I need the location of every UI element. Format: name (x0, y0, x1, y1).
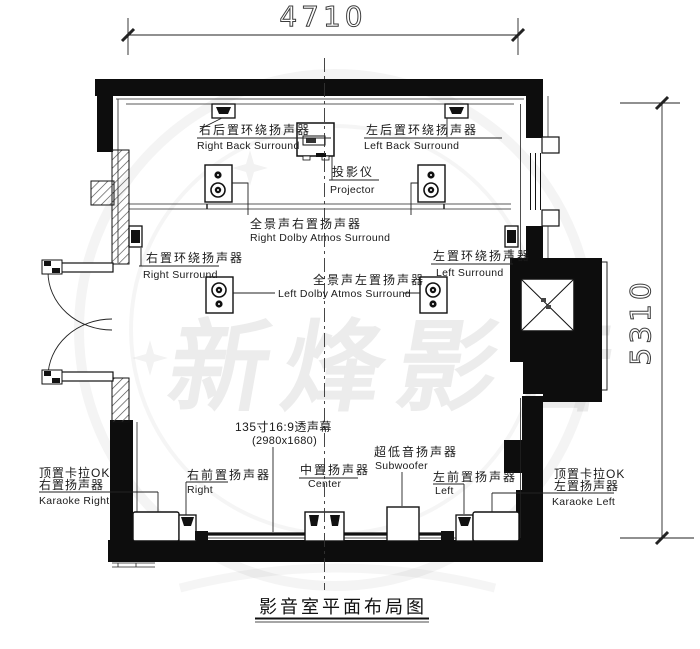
shaft-mark (541, 298, 546, 302)
svg-text:135寸16:9透声幕: 135寸16:9透声幕 (235, 420, 332, 434)
svg-text:Karaoke Right: Karaoke Right (39, 495, 109, 507)
svg-text:(2980x1680): (2980x1680) (252, 435, 317, 447)
dimension-right: 5310 (620, 97, 694, 544)
svg-text:左置扬声器: 左置扬声器 (554, 478, 619, 493)
screen-end-cap (441, 531, 454, 540)
svg-text:Right Surround: Right Surround (143, 269, 218, 281)
front-left-speaker (456, 515, 473, 541)
right-back-surround-speaker (212, 104, 235, 118)
svg-text:超低音扬声器: 超低音扬声器 (374, 444, 458, 459)
wall-right-upper (526, 96, 543, 138)
bay-notch (510, 362, 523, 394)
svg-text:Left: Left (435, 485, 454, 497)
dimension-top-value: 4710 (279, 0, 366, 33)
label-karaoke-right: 顶置卡拉OK 右置扬声器 Karaoke Right (39, 465, 110, 507)
label-right-back-surround: 右后置环绕扬声器 Right Back Surround (197, 122, 311, 152)
door-hinge-mark (44, 371, 51, 376)
label-front-right: 右前置扬声器 Right (187, 467, 271, 496)
svg-text:Karaoke Left: Karaoke Left (552, 496, 615, 508)
svg-text:Right Back Surround: Right Back Surround (197, 140, 300, 152)
label-subwoofer: 超低音扬声器 Subwoofer (374, 444, 458, 472)
svg-text:Left Back Surround: Left Back Surround (364, 140, 459, 152)
wall-left-lower (110, 420, 133, 542)
karaoke-right-cabinet (133, 512, 179, 541)
wall-pier (91, 181, 114, 205)
label-right-atmos: 全景声右置扬声器 Right Dolby Atmos Surround (250, 216, 390, 244)
left-back-surround-speaker (445, 104, 468, 118)
svg-text:全景声右置扬声器: 全景声右置扬声器 (250, 216, 362, 231)
svg-text:Left Surround: Left Surround (436, 267, 504, 279)
svg-text:Center: Center (308, 478, 342, 490)
floor-plan-page: 新烽影音 (0, 0, 700, 649)
door-hinge-mark (52, 378, 60, 383)
left-atmos-front-speaker (418, 165, 445, 202)
wall-hatched-lower (112, 378, 129, 422)
watermark-star-icon (232, 150, 268, 186)
wall-right-bulge (504, 440, 522, 473)
dimension-top: 4710 (122, 0, 524, 55)
svg-text:投影仪: 投影仪 (332, 164, 374, 179)
subwoofer-box (387, 507, 419, 541)
wall-top (95, 79, 543, 96)
svg-text:右前置扬声器: 右前置扬声器 (187, 467, 271, 482)
svg-text:Subwoofer: Subwoofer (375, 460, 428, 472)
label-screen: 135寸16:9透声幕 (2980x1680) (235, 420, 332, 447)
label-left-atmos: 全景声左置扬声器 Left Dolby Atmos Surround (278, 272, 425, 300)
label-karaoke-left: 顶置卡拉OK 左置扬声器 Karaoke Left (552, 466, 625, 508)
svg-text:左后置环绕扬声器: 左后置环绕扬声器 (366, 122, 478, 137)
svg-text:Left Dolby Atmos Surround: Left Dolby Atmos Surround (278, 288, 411, 300)
svg-text:右后置环绕扬声器: 右后置环绕扬声器 (199, 122, 311, 137)
floor-plan-drawing: 新烽影音 (0, 0, 700, 649)
door-hinge-mark (44, 261, 51, 266)
svg-text:Right Dolby Atmos Surround: Right Dolby Atmos Surround (250, 232, 390, 244)
wall-left-upper (97, 79, 113, 152)
page-title: 影音室平面布局图 (259, 597, 427, 617)
watermark-star-icon (132, 340, 168, 376)
projector-lens (306, 138, 316, 143)
svg-text:Right: Right (187, 484, 213, 496)
svg-text:Projector: Projector (330, 184, 375, 196)
right-atmos-rear-speaker (206, 277, 233, 313)
left-surround-speaker (505, 226, 518, 247)
wall-right-lower (522, 396, 543, 562)
wall-hatched-upper (112, 150, 129, 264)
right-atmos-front-speaker (205, 165, 232, 202)
door-hinge-mark (52, 268, 60, 273)
right-surround-speaker (129, 226, 142, 247)
karaoke-left-cabinet (473, 512, 519, 541)
wall-bottom (108, 540, 543, 562)
window-frame-top (542, 137, 559, 153)
svg-text:右置环绕扬声器: 右置环绕扬声器 (146, 250, 244, 265)
label-center: 中置扬声器 Center (300, 462, 370, 490)
svg-text:中置扬声器: 中置扬声器 (300, 462, 370, 477)
projector-foot (303, 156, 310, 160)
front-row (133, 507, 519, 541)
wall-bay-step (543, 394, 602, 402)
svg-text:全景声左置扬声器: 全景声左置扬声器 (313, 272, 425, 287)
label-left-back-surround: 左后置环绕扬声器 Left Back Surround (364, 122, 478, 152)
dimension-right-value: 5310 (624, 278, 657, 365)
window-frame-bottom (542, 210, 559, 226)
svg-text:左置环绕扬声器: 左置环绕扬声器 (433, 248, 531, 263)
svg-text:右置扬声器: 右置扬声器 (39, 477, 104, 492)
shaft-mark (546, 305, 551, 309)
svg-text:左前置扬声器: 左前置扬声器 (433, 469, 517, 484)
front-right-speaker (179, 515, 196, 541)
drawing-title: 影音室平面布局图 (255, 597, 429, 622)
screen-end-cap (195, 531, 208, 540)
